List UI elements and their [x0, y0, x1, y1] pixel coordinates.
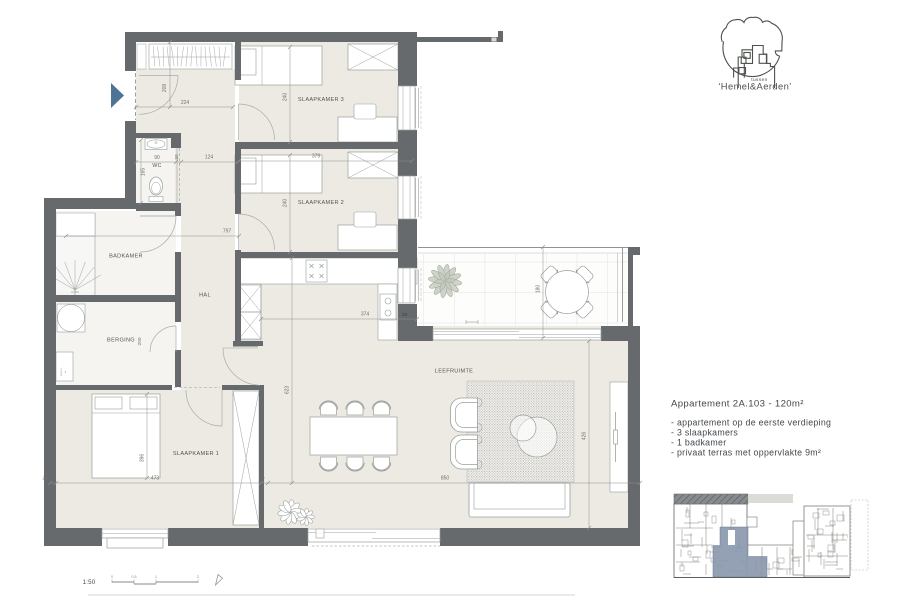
svg-text:SLAAPKAMER 1: SLAAPKAMER 1	[173, 451, 219, 457]
svg-text:0: 0	[111, 575, 113, 579]
svg-text:180: 180	[536, 285, 542, 294]
svg-text:374: 374	[361, 312, 370, 318]
svg-text:BERGING: BERGING	[107, 338, 135, 344]
svg-text:BADKAMER: BADKAMER	[109, 254, 143, 260]
svg-text:124: 124	[205, 155, 214, 161]
svg-text:HAL: HAL	[199, 293, 211, 299]
svg-text:797: 797	[223, 229, 232, 235]
svg-text:DUPLEX: DUPLEX	[61, 367, 63, 376]
svg-text:- 1 badkamer: - 1 badkamer	[671, 438, 726, 448]
svg-text:2: 2	[197, 575, 199, 579]
svg-text:Appartement 2A.103 - 120m²: Appartement 2A.103 - 120m²	[671, 399, 804, 410]
svg-text:29: 29	[402, 312, 408, 317]
svg-text:200: 200	[137, 337, 143, 345]
svg-text:379: 379	[312, 154, 321, 160]
svg-text:SLAAPKAMER 2: SLAAPKAMER 2	[298, 200, 344, 206]
svg-text:- 3 slaapkamers: - 3 slaapkamers	[671, 428, 738, 438]
svg-text:396: 396	[140, 454, 146, 463]
svg-text:1: 1	[155, 575, 157, 579]
svg-text:165: 165	[141, 168, 147, 177]
svg-text:90: 90	[154, 155, 160, 161]
svg-text:LEEFRUIMTE: LEEFRUIMTE	[435, 369, 473, 375]
svg-text:30: 30	[260, 476, 265, 481]
svg-text:- privaat terras met oppervlak: - privaat terras met oppervlakte 9m²	[671, 448, 821, 458]
svg-text:0.5: 0.5	[132, 575, 137, 579]
svg-text:29: 29	[43, 476, 48, 481]
svg-text:SLAAPKAMER 3: SLAAPKAMER 3	[298, 97, 344, 103]
svg-text:- appartement op de eerste ver: - appartement op de eerste verdieping	[671, 418, 831, 428]
svg-text:240: 240	[283, 93, 289, 102]
svg-text:240: 240	[283, 199, 289, 208]
svg-text:WC: WC	[152, 163, 161, 169]
svg-text:‘Hemel&Aerden’: ‘Hemel&Aerden’	[718, 81, 791, 92]
svg-text:30: 30	[174, 154, 179, 160]
svg-text:850: 850	[441, 476, 450, 482]
svg-text:209: 209	[162, 84, 168, 93]
svg-text:623: 623	[285, 386, 291, 395]
svg-text:1:50: 1:50	[83, 579, 96, 586]
svg-text:224: 224	[181, 100, 190, 106]
svg-text:473: 473	[151, 476, 160, 482]
svg-text:426: 426	[582, 432, 588, 441]
